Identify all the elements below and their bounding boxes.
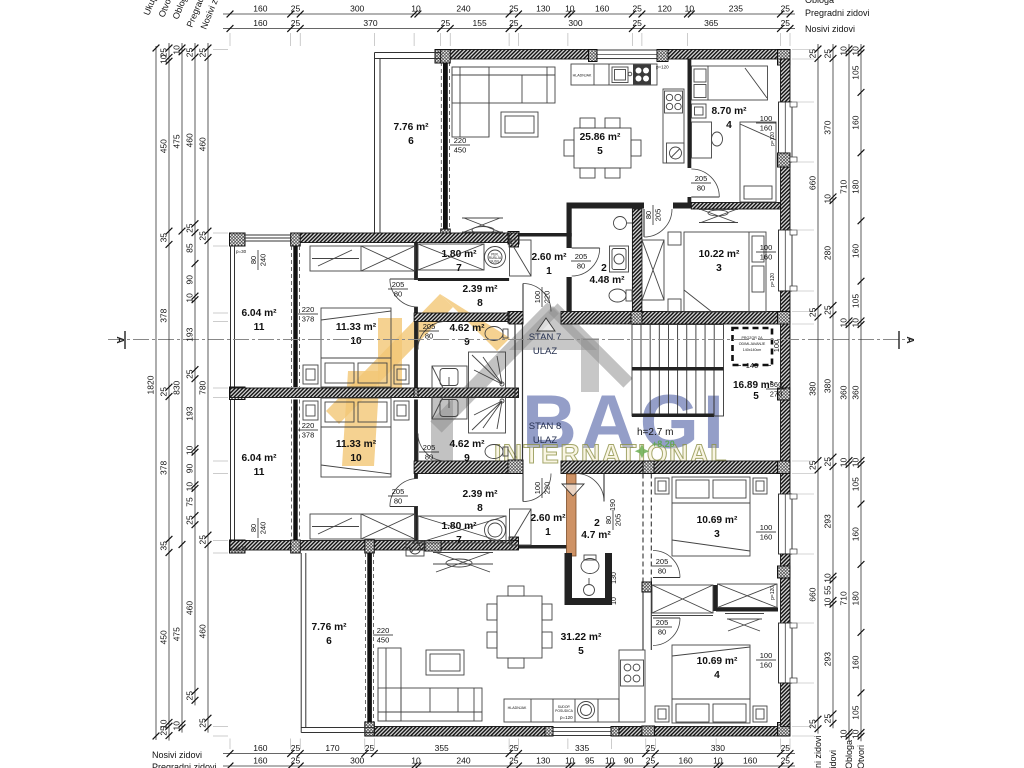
svg-text:193: 193 [185, 327, 195, 341]
svg-text:170: 170 [325, 743, 339, 753]
svg-text:ULAZ: ULAZ [533, 435, 557, 446]
svg-text:25: 25 [365, 743, 375, 753]
svg-text:80: 80 [697, 184, 705, 193]
svg-text:SUSIL: SUSIL [490, 260, 499, 264]
svg-text:300: 300 [350, 756, 364, 766]
svg-text:4: 4 [726, 120, 732, 131]
svg-text:25: 25 [291, 756, 301, 766]
svg-text:205: 205 [575, 252, 588, 261]
svg-text:378: 378 [159, 461, 169, 475]
svg-text:360: 360 [851, 385, 861, 399]
svg-text:Nosivi zidovi: Nosivi zidovi [828, 750, 838, 768]
svg-text:330: 330 [711, 743, 725, 753]
svg-text:100: 100 [760, 114, 773, 123]
svg-text:85: 85 [185, 243, 195, 253]
svg-text:25: 25 [823, 457, 833, 467]
svg-text:205: 205 [423, 322, 436, 331]
svg-text:710: 710 [839, 179, 849, 193]
svg-text:660: 660 [808, 587, 818, 601]
svg-text:10: 10 [185, 293, 195, 303]
svg-text:10: 10 [839, 318, 849, 328]
svg-text:160: 160 [595, 4, 609, 14]
svg-text:293: 293 [823, 652, 833, 666]
svg-text:100: 100 [760, 523, 773, 532]
svg-text:25: 25 [823, 714, 833, 724]
svg-text:10: 10 [839, 46, 849, 56]
svg-text:25: 25 [198, 48, 208, 58]
svg-text:10: 10 [565, 756, 575, 766]
svg-text:10: 10 [411, 4, 421, 14]
svg-text:205: 205 [614, 514, 623, 527]
svg-text:Obloga: Obloga [805, 0, 834, 5]
svg-text:160: 160 [851, 244, 861, 258]
svg-text:378: 378 [302, 315, 315, 324]
svg-text:100: 100 [760, 651, 773, 660]
svg-text:100: 100 [772, 340, 781, 353]
svg-text:155: 155 [473, 18, 487, 28]
svg-text:10: 10 [823, 573, 833, 583]
svg-text:5: 5 [753, 391, 759, 402]
svg-text:Nosivi zidovi: Nosivi zidovi [805, 24, 855, 34]
svg-text:A: A [114, 336, 125, 343]
svg-text:10: 10 [685, 4, 695, 14]
svg-text:8: 8 [477, 503, 483, 514]
svg-text:2.60 m²: 2.60 m² [530, 513, 566, 524]
svg-text:293: 293 [823, 514, 833, 528]
svg-text:25: 25 [781, 756, 791, 766]
svg-text:140x140cm: 140x140cm [743, 348, 762, 352]
svg-text:25: 25 [509, 4, 519, 14]
svg-text:p=30: p=30 [236, 545, 247, 550]
svg-text:90: 90 [185, 464, 195, 474]
svg-text:4.7 m²: 4.7 m² [581, 530, 611, 541]
svg-text:25: 25 [632, 18, 642, 28]
svg-text:25: 25 [159, 387, 169, 397]
svg-text:105: 105 [851, 65, 861, 79]
svg-text:Nosivi zidovi: Nosivi zidovi [152, 750, 202, 760]
svg-text:205: 205 [423, 443, 436, 452]
svg-text:Pregradni zidovi: Pregradni zidovi [805, 8, 870, 18]
svg-text:+8.20: +8.20 [652, 439, 675, 449]
svg-text:105: 105 [851, 294, 861, 308]
svg-text:160: 160 [253, 18, 267, 28]
svg-text:25.86 m²: 25.86 m² [580, 132, 621, 143]
svg-text:11.33 m²: 11.33 m² [336, 322, 377, 333]
svg-text:Pregradni zidovi: Pregradni zidovi [813, 735, 823, 768]
svg-text:475: 475 [172, 627, 182, 641]
svg-text:10: 10 [823, 597, 833, 607]
svg-text:10: 10 [172, 45, 182, 55]
svg-text:25: 25 [291, 743, 301, 753]
svg-text:160: 160 [851, 115, 861, 129]
svg-text:6.04 m²: 6.04 m² [241, 308, 277, 319]
svg-text:450: 450 [159, 630, 169, 644]
svg-text:10: 10 [159, 54, 169, 64]
svg-text:10.69 m²: 10.69 m² [697, 515, 738, 526]
svg-text:10: 10 [851, 318, 861, 328]
svg-text:p=30: p=30 [236, 249, 247, 254]
svg-text:460: 460 [185, 133, 195, 147]
svg-text:205: 205 [392, 280, 405, 289]
svg-text:180: 180 [851, 591, 861, 605]
svg-text:25: 25 [509, 756, 519, 766]
svg-text:450: 450 [377, 636, 390, 645]
svg-text:Pregradni zidovi: Pregradni zidovi [152, 762, 217, 768]
svg-text:2.60 m²: 2.60 m² [531, 252, 567, 263]
svg-text:370: 370 [823, 120, 833, 134]
svg-text:220: 220 [302, 421, 315, 430]
svg-text:10: 10 [611, 597, 618, 605]
svg-text:365: 365 [704, 18, 718, 28]
svg-text:300: 300 [568, 18, 582, 28]
svg-text:710: 710 [839, 591, 849, 605]
svg-text:8.70 m²: 8.70 m² [711, 106, 747, 117]
svg-text:160: 160 [851, 527, 861, 541]
svg-text:25: 25 [823, 305, 833, 315]
svg-text:130: 130 [536, 756, 550, 766]
svg-text:10: 10 [851, 46, 861, 56]
svg-text:95: 95 [585, 756, 595, 766]
svg-text:8: 8 [477, 298, 483, 309]
svg-text:160: 160 [760, 124, 773, 133]
svg-text:220: 220 [543, 482, 552, 495]
svg-text:450: 450 [159, 139, 169, 153]
svg-text:10: 10 [839, 729, 849, 739]
svg-text:160: 160 [253, 756, 267, 766]
svg-text:100: 100 [533, 291, 542, 304]
svg-text:450: 450 [454, 146, 467, 155]
svg-text:7: 7 [456, 535, 462, 546]
svg-text:6: 6 [326, 636, 332, 647]
svg-text:4: 4 [714, 670, 720, 681]
svg-text:460: 460 [198, 624, 208, 638]
svg-text:220: 220 [302, 305, 315, 314]
svg-text:1.80 m²: 1.80 m² [441, 521, 477, 532]
svg-text:80: 80 [249, 256, 258, 264]
svg-text:10: 10 [185, 445, 195, 455]
svg-text:130: 130 [611, 572, 618, 584]
svg-text:5: 5 [578, 646, 584, 657]
svg-text:660: 660 [808, 176, 818, 190]
svg-text:90: 90 [624, 756, 634, 766]
svg-text:80: 80 [577, 262, 585, 271]
svg-text:360: 360 [770, 380, 783, 389]
svg-text:180: 180 [851, 179, 861, 193]
svg-text:25: 25 [509, 18, 519, 28]
svg-text:220: 220 [543, 291, 552, 304]
svg-text:270: 270 [770, 390, 783, 399]
svg-text:3: 3 [716, 263, 722, 274]
svg-text:10: 10 [565, 4, 575, 14]
svg-text:335: 335 [575, 743, 589, 753]
svg-text:6: 6 [408, 136, 414, 147]
svg-text:HLADNJAK: HLADNJAK [508, 706, 527, 710]
svg-text:25: 25 [198, 535, 208, 545]
svg-text:10: 10 [411, 756, 421, 766]
svg-text:4.48 m²: 4.48 m² [589, 275, 625, 286]
svg-text:9: 9 [464, 337, 470, 348]
svg-text:1: 1 [546, 266, 552, 277]
svg-text:360: 360 [839, 385, 849, 399]
svg-text:80: 80 [425, 453, 433, 462]
svg-text:10: 10 [172, 721, 182, 731]
svg-text:205: 205 [392, 487, 405, 496]
svg-text:25: 25 [781, 18, 791, 28]
svg-text:16.89 m²: 16.89 m² [733, 380, 774, 391]
svg-text:205: 205 [695, 174, 708, 183]
svg-text:80: 80 [394, 497, 402, 506]
svg-text:STAN 8: STAN 8 [529, 421, 562, 432]
svg-text:160: 160 [760, 533, 773, 542]
svg-text:25: 25 [185, 223, 195, 233]
svg-text:2.39 m²: 2.39 m² [462, 489, 498, 500]
svg-text:160: 160 [679, 756, 693, 766]
svg-text:2: 2 [601, 263, 607, 274]
svg-text:830: 830 [172, 380, 182, 394]
svg-text:235: 235 [729, 4, 743, 14]
svg-text:355: 355 [435, 743, 449, 753]
svg-text:378: 378 [159, 308, 169, 322]
svg-text:25: 25 [198, 231, 208, 241]
svg-text:ULAZ: ULAZ [533, 346, 557, 357]
svg-text:25: 25 [185, 691, 195, 701]
svg-text:25: 25 [185, 515, 195, 525]
svg-text:25: 25 [291, 18, 301, 28]
svg-text:35: 35 [159, 233, 169, 243]
svg-text:STAN 7: STAN 7 [529, 332, 562, 343]
svg-text:140: 140 [746, 361, 759, 370]
svg-text:1820: 1820 [146, 375, 156, 394]
svg-text:240: 240 [259, 522, 268, 535]
svg-text:25: 25 [185, 369, 195, 379]
svg-text:2: 2 [594, 518, 600, 529]
svg-text:p=120: p=120 [560, 715, 573, 720]
svg-text:10: 10 [605, 756, 615, 766]
svg-text:240: 240 [456, 4, 470, 14]
svg-text:11: 11 [254, 467, 265, 478]
svg-text:160: 160 [851, 655, 861, 669]
svg-text:9: 9 [464, 453, 470, 464]
svg-text:105: 105 [851, 705, 861, 719]
svg-text:p=120: p=120 [656, 65, 669, 70]
svg-text:160: 160 [760, 661, 773, 670]
svg-text:80: 80 [604, 516, 613, 524]
svg-text:10: 10 [713, 756, 723, 766]
svg-text:75: 75 [185, 497, 195, 507]
svg-text:31.22 m²: 31.22 m² [561, 632, 602, 643]
svg-text:11: 11 [254, 322, 265, 333]
svg-text:ODIMLJAVANJE: ODIMLJAVANJE [739, 342, 766, 346]
svg-text:80: 80 [658, 628, 666, 637]
svg-text:378: 378 [302, 431, 315, 440]
svg-text:25: 25 [808, 49, 818, 59]
svg-text:160: 160 [760, 253, 773, 262]
svg-text:90: 90 [185, 275, 195, 285]
svg-text:105: 105 [851, 477, 861, 491]
svg-text:80: 80 [249, 524, 258, 532]
svg-text:3: 3 [714, 529, 720, 540]
svg-text:190: 190 [610, 499, 617, 511]
svg-text:25: 25 [509, 743, 519, 753]
svg-text:1.80 m²: 1.80 m² [441, 249, 477, 260]
svg-text:10.22 m²: 10.22 m² [699, 249, 740, 260]
svg-text:A: A [904, 336, 915, 343]
svg-text:780: 780 [198, 380, 208, 394]
svg-text:80: 80 [658, 567, 666, 576]
svg-text:380: 380 [823, 379, 833, 393]
svg-text:POSUDICA: POSUDICA [555, 709, 573, 713]
svg-text:10: 10 [350, 453, 362, 464]
svg-text:55: 55 [823, 585, 833, 595]
svg-text:475: 475 [172, 134, 182, 148]
svg-text:10: 10 [823, 194, 833, 204]
svg-text:4.62 m²: 4.62 m² [449, 439, 485, 450]
svg-text:Obloga: Obloga [844, 740, 854, 768]
svg-text:280: 280 [823, 246, 833, 260]
svg-text:130: 130 [536, 4, 550, 14]
svg-text:10: 10 [350, 336, 362, 347]
svg-text:25: 25 [291, 4, 301, 14]
svg-text:100: 100 [533, 482, 542, 495]
svg-text:h=2.7 m: h=2.7 m [637, 427, 673, 438]
svg-text:25: 25 [198, 718, 208, 728]
svg-text:10: 10 [839, 458, 849, 468]
svg-text:380: 380 [808, 381, 818, 395]
svg-text:p=120: p=120 [770, 586, 776, 600]
svg-text:25: 25 [808, 719, 818, 729]
svg-text:10: 10 [851, 458, 861, 468]
svg-text:80: 80 [394, 290, 402, 299]
svg-text:4.62 m²: 4.62 m² [449, 323, 485, 334]
svg-text:205: 205 [654, 209, 663, 222]
svg-text:25: 25 [646, 756, 656, 766]
svg-text:25: 25 [632, 4, 642, 14]
svg-text:25: 25 [781, 4, 791, 14]
svg-text:370: 370 [363, 18, 377, 28]
svg-text:5: 5 [597, 146, 603, 157]
svg-text:25: 25 [781, 743, 791, 753]
svg-text:7.76 m²: 7.76 m² [393, 122, 429, 133]
svg-text:80: 80 [644, 211, 653, 219]
svg-text:220: 220 [377, 626, 390, 635]
svg-text:6.04 m²: 6.04 m² [241, 453, 277, 464]
svg-text:160: 160 [743, 756, 757, 766]
svg-text:460: 460 [185, 601, 195, 615]
svg-text:100: 100 [760, 243, 773, 252]
svg-text:25: 25 [823, 49, 833, 59]
svg-text:25: 25 [808, 307, 818, 317]
svg-text:240: 240 [259, 254, 268, 267]
svg-text:120: 120 [658, 4, 672, 14]
svg-text:HLADNJAK: HLADNJAK [573, 74, 592, 78]
svg-text:10: 10 [185, 482, 195, 492]
svg-text:240: 240 [456, 756, 470, 766]
svg-text:1: 1 [545, 527, 551, 538]
svg-text:2.39 m²: 2.39 m² [462, 284, 498, 295]
svg-text:Otvori: Otvori [856, 745, 866, 768]
svg-text:35: 35 [159, 541, 169, 551]
svg-text:25: 25 [185, 48, 195, 58]
svg-text:7: 7 [456, 263, 462, 274]
svg-text:25: 25 [159, 726, 169, 736]
svg-text:205: 205 [656, 557, 669, 566]
svg-text:11.33 m²: 11.33 m² [336, 439, 377, 450]
svg-text:p=120: p=120 [770, 273, 776, 287]
svg-text:205: 205 [656, 618, 669, 627]
svg-text:25: 25 [441, 18, 451, 28]
svg-text:25: 25 [808, 460, 818, 470]
svg-text:220: 220 [454, 136, 467, 145]
svg-text:160: 160 [253, 4, 267, 14]
svg-text:7.76 m²: 7.76 m² [311, 622, 347, 633]
svg-text:300: 300 [350, 4, 364, 14]
svg-text:p=120: p=120 [770, 132, 776, 146]
svg-text:10: 10 [851, 729, 861, 739]
svg-text:10.69 m²: 10.69 m² [697, 656, 738, 667]
svg-text:460: 460 [198, 137, 208, 151]
svg-text:193: 193 [185, 406, 195, 420]
svg-text:25: 25 [646, 743, 656, 753]
svg-text:160: 160 [253, 743, 267, 753]
